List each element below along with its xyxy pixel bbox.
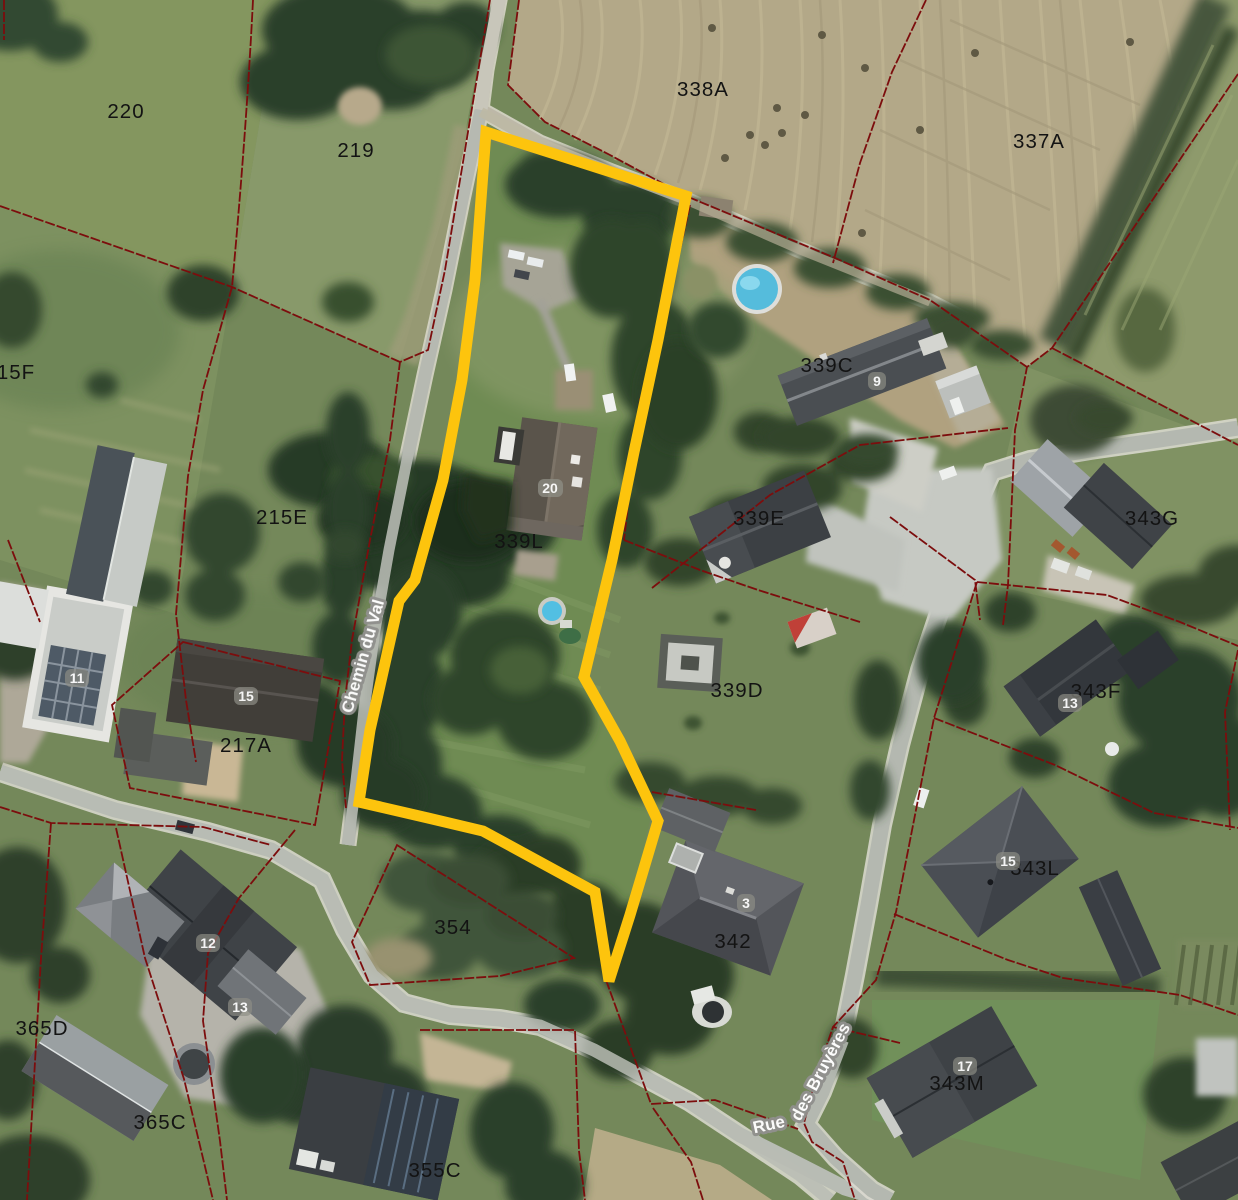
svg-text:339E: 339E [733,507,785,530]
svg-text:343M: 343M [929,1072,984,1095]
svg-text:12: 12 [200,935,216,951]
svg-text:220: 220 [107,100,144,123]
svg-text:338A: 338A [677,78,729,101]
svg-text:3: 3 [742,895,750,911]
svg-text:15: 15 [1000,853,1016,869]
svg-text:17: 17 [957,1058,973,1074]
svg-text:343G: 343G [1125,507,1179,530]
svg-text:337A: 337A [1013,130,1065,153]
svg-text:15: 15 [238,688,254,704]
svg-text:339D: 339D [710,679,763,702]
svg-text:365C: 365C [133,1111,186,1134]
svg-text:13: 13 [232,999,248,1015]
svg-text:354: 354 [434,916,471,939]
svg-text:11: 11 [70,670,85,686]
svg-text:215E: 215E [256,506,308,529]
svg-text:13: 13 [1062,695,1078,711]
svg-text:219: 219 [337,139,374,162]
svg-text:355C: 355C [408,1159,461,1182]
svg-text:217A: 217A [220,734,272,757]
svg-text:342: 342 [714,930,751,953]
svg-text:20: 20 [542,480,558,496]
svg-text:339L: 339L [494,530,544,553]
svg-text:365D: 365D [15,1017,68,1040]
svg-text:9: 9 [873,373,881,389]
svg-text:339C: 339C [800,354,853,377]
svg-text:15F: 15F [0,361,35,384]
